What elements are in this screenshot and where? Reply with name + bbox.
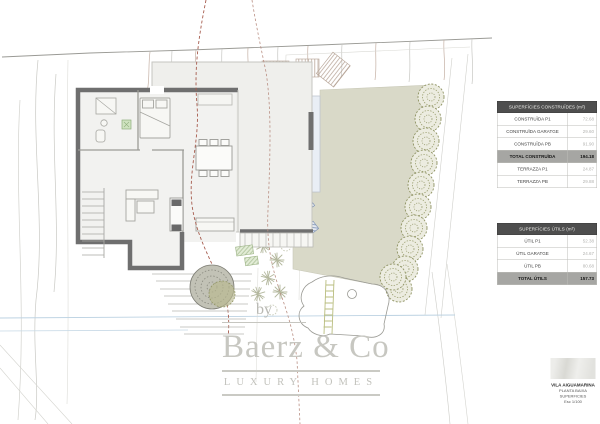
table-row: ÚTIL P152.38 bbox=[497, 235, 597, 248]
table-row: CONSTRUÏDA GARATGE29.60 bbox=[497, 126, 597, 139]
area-label: ÚTIL P1 bbox=[498, 235, 568, 247]
table-row: CONSTRUÏDA PB91.90 bbox=[497, 138, 597, 151]
lounge-sofa-icon bbox=[196, 218, 234, 231]
area-label: ÚTIL PB bbox=[498, 260, 568, 272]
dining-table-icon bbox=[196, 140, 232, 177]
table-row: TOTAL CONSTRUÏDA194.18 bbox=[497, 151, 597, 164]
area-label: ÚTIL GARATGE bbox=[498, 248, 568, 260]
table-row: TERRAZZA P124.87 bbox=[497, 163, 597, 176]
watermark-rule bbox=[222, 370, 380, 372]
site-plan-sheet: SUPERFÍCIES CONSTRUÏDES (m²) CONSTRUÏDA … bbox=[0, 0, 600, 424]
watermark-by: by bbox=[222, 300, 306, 320]
area-label: CONSTRUÏDA GARATGE bbox=[498, 126, 568, 138]
area-value: 80.68 bbox=[568, 260, 597, 272]
watermark-brand: Baerz & Co bbox=[222, 327, 380, 367]
area-value: 52.38 bbox=[568, 235, 597, 247]
garden-tree-icon bbox=[380, 264, 406, 290]
watermark-rule bbox=[222, 394, 380, 396]
area-label: TERRAZZA PB bbox=[498, 176, 568, 188]
tree-icon bbox=[408, 172, 434, 198]
constructed-areas-table: SUPERFÍCIES CONSTRUÏDES (m²) CONSTRUÏDA … bbox=[497, 101, 597, 188]
tree-icon bbox=[411, 150, 437, 176]
plant-icon bbox=[122, 120, 131, 129]
area-value: 24.67 bbox=[568, 248, 597, 260]
area-value: 29.88 bbox=[568, 176, 597, 188]
wardrobe-icon bbox=[198, 94, 232, 105]
watermark-rule bbox=[222, 322, 306, 323]
area-value: 194.18 bbox=[568, 151, 597, 163]
planter-icon bbox=[236, 245, 259, 266]
table-row: ÚTIL GARATGE24.67 bbox=[497, 248, 597, 261]
constructed-areas-header: SUPERFÍCIES CONSTRUÏDES (m²) bbox=[497, 101, 597, 113]
area-label: CONSTRUÏDA P1 bbox=[498, 113, 568, 125]
area-value: 72.68 bbox=[568, 113, 597, 125]
area-label: CONSTRUÏDA PB bbox=[498, 138, 568, 150]
table-row: CONSTRUÏDA P172.68 bbox=[497, 113, 597, 126]
title-block: VILA AIGUAMARINA PLANTA BAIXA SUPERFICIE… bbox=[546, 358, 600, 405]
area-value: 91.90 bbox=[568, 138, 597, 150]
area-label: TOTAL ÚTILS bbox=[498, 273, 568, 285]
tree-icon bbox=[418, 84, 444, 110]
kitchen-island-icon bbox=[170, 198, 183, 231]
bed-icon bbox=[140, 98, 170, 138]
door-opening bbox=[150, 86, 164, 94]
project-thumbnail bbox=[551, 358, 596, 379]
floor-plan bbox=[78, 62, 313, 268]
area-label: TERRAZZA P1 bbox=[498, 163, 568, 175]
table-row: TOTAL ÚTILS157.73 bbox=[497, 273, 597, 286]
watermark: by Baerz & Co LUXURY HOMES bbox=[222, 300, 380, 401]
area-value: 29.60 bbox=[568, 126, 597, 138]
table-row: TERRAZZA PB29.88 bbox=[497, 176, 597, 189]
useful-areas-table: SUPERFÍCIES ÚTILS (m²) ÚTIL P152.38ÚTIL … bbox=[497, 223, 597, 285]
area-label: TOTAL CONSTRUÏDA bbox=[498, 151, 568, 163]
scale-label: Esc 1/100 bbox=[546, 399, 600, 405]
watermark-tagline: LUXURY HOMES bbox=[222, 377, 380, 388]
useful-areas-header: SUPERFÍCIES ÚTILS (m²) bbox=[497, 223, 597, 235]
area-value: 157.73 bbox=[568, 273, 597, 285]
table-row: ÚTIL PB80.68 bbox=[497, 260, 597, 273]
area-value: 24.87 bbox=[568, 163, 597, 175]
